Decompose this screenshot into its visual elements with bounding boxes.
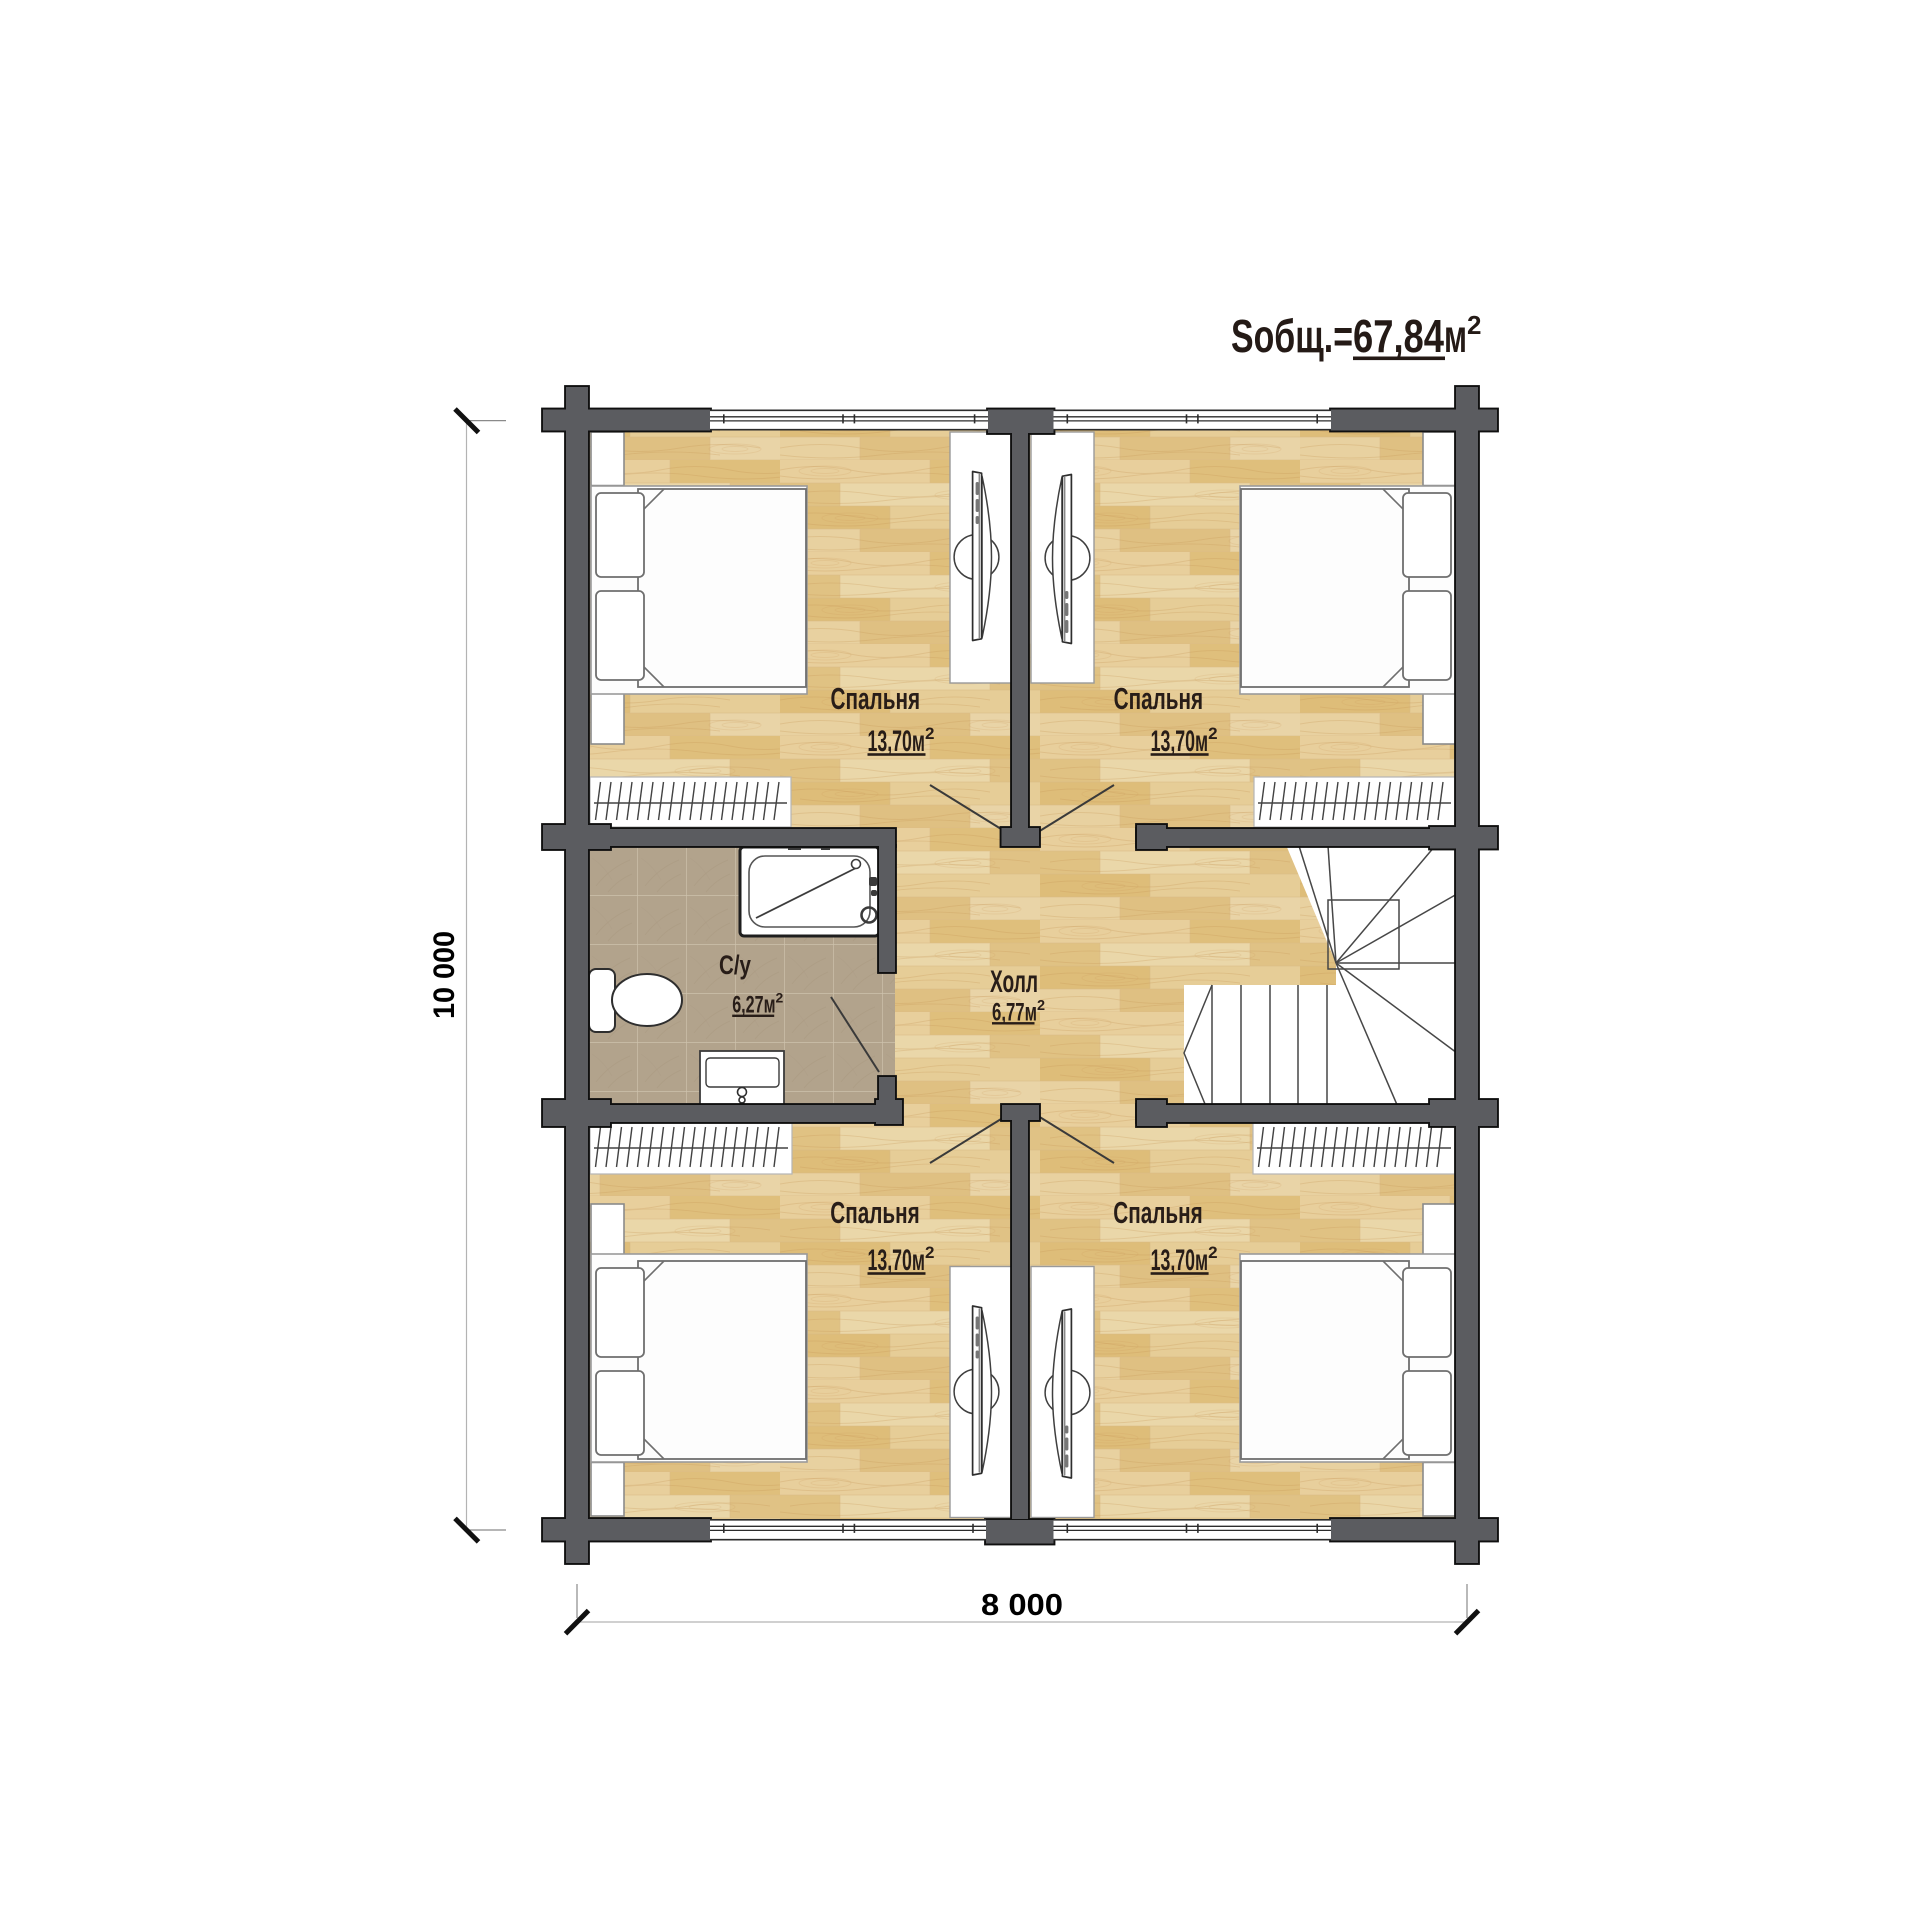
svg-text:м: м bbox=[1444, 310, 1467, 362]
svg-text:Спальня: Спальня bbox=[1113, 1195, 1203, 1230]
svg-text:С/у: С/у bbox=[719, 950, 751, 980]
svg-text:2: 2 bbox=[776, 990, 784, 1006]
svg-text:13,70м: 13,70м bbox=[1151, 725, 1209, 758]
svg-text:2: 2 bbox=[925, 1243, 934, 1262]
svg-text:2: 2 bbox=[1208, 1243, 1217, 1262]
svg-text:8 000: 8 000 bbox=[981, 1587, 1063, 1622]
svg-text:Спальня: Спальня bbox=[1114, 681, 1204, 716]
svg-text:67,84: 67,84 bbox=[1353, 310, 1444, 362]
svg-text:Спальня: Спальня bbox=[830, 1195, 920, 1230]
svg-text:2: 2 bbox=[1037, 998, 1045, 1014]
svg-text:Холл: Холл bbox=[990, 963, 1038, 999]
svg-text:13,70м: 13,70м bbox=[868, 725, 926, 758]
svg-text:2: 2 bbox=[1208, 724, 1217, 743]
svg-text:13,70м: 13,70м bbox=[1151, 1244, 1209, 1277]
svg-text:13,70м: 13,70м bbox=[868, 1244, 926, 1277]
svg-text:Sобщ.=: Sобщ.= bbox=[1231, 310, 1353, 362]
svg-text:Спальня: Спальня bbox=[831, 681, 921, 716]
svg-text:2: 2 bbox=[1467, 310, 1481, 340]
svg-text:6,27м: 6,27м bbox=[732, 992, 775, 1019]
svg-text:2: 2 bbox=[925, 724, 934, 743]
svg-text:10 000: 10 000 bbox=[428, 931, 461, 1019]
